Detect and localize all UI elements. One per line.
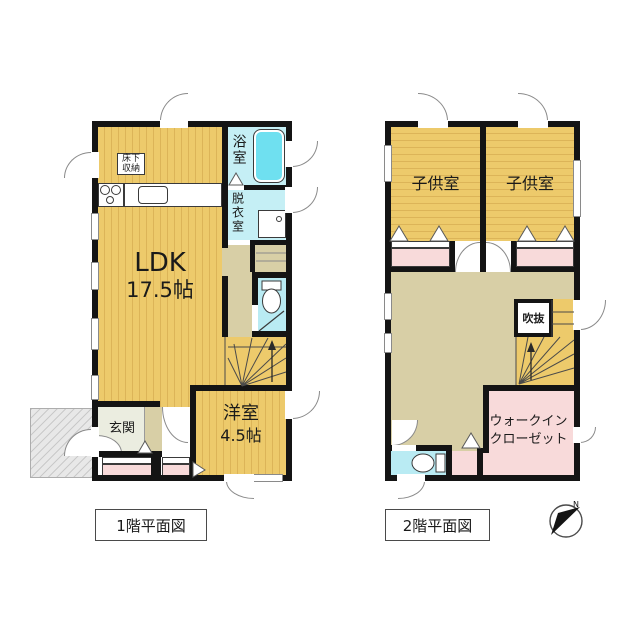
folding-door-icon: [138, 441, 152, 453]
toilet-bowl: [263, 289, 281, 313]
compass-circle: [550, 505, 582, 537]
stair-winder-lines: [519, 337, 574, 384]
burner-icon: [112, 186, 121, 195]
wic-label-line2: クローゼット: [483, 433, 574, 448]
wic-label-line1: ウォークイン: [483, 415, 574, 430]
burner-icon: [107, 197, 114, 204]
door-leaf: [259, 311, 284, 331]
closet-door-icon: [556, 226, 574, 241]
floor1-title: 1階平面図: [116, 515, 186, 536]
closet-door-icon: [430, 226, 448, 241]
floorplan-canvas: 床下 収納: [0, 0, 640, 640]
floor2-title-box: 2階平面図: [385, 509, 490, 541]
bath-label: 浴室: [230, 134, 246, 166]
burner-icon: [101, 186, 110, 195]
stair-arrow-head: [268, 340, 276, 350]
floor2-title: 2階平面図: [403, 515, 473, 536]
folding-door-icon: [462, 433, 480, 448]
dressing-label: 脱衣室: [230, 192, 243, 234]
ldk-label: LDK: [98, 249, 222, 278]
closet-door-icon: [390, 226, 408, 241]
ldk-size-label: 17.5帖: [98, 279, 222, 303]
toilet-bowl: [412, 454, 434, 472]
stair-winder-lines: [228, 338, 286, 386]
floor1-title-box: 1階平面図: [95, 509, 207, 541]
shelf-lines: [256, 253, 286, 261]
toilet-tank: [436, 454, 445, 472]
faucet-icon: [277, 217, 282, 222]
stair-arrow-head: [527, 342, 535, 352]
plan-linework: N: [0, 0, 640, 640]
entrance-label: 玄関: [98, 422, 146, 437]
kids-right-label: 子供室: [486, 175, 574, 193]
compass-north-label: N: [573, 500, 579, 509]
western-label: 洋室: [196, 404, 286, 424]
kids-left-label: 子供室: [391, 175, 480, 193]
western-size-label: 4.5帖: [196, 427, 286, 445]
folding-door-icon: [229, 173, 243, 185]
closet-door-icon: [518, 226, 536, 241]
folding-door-icon: [193, 462, 205, 477]
